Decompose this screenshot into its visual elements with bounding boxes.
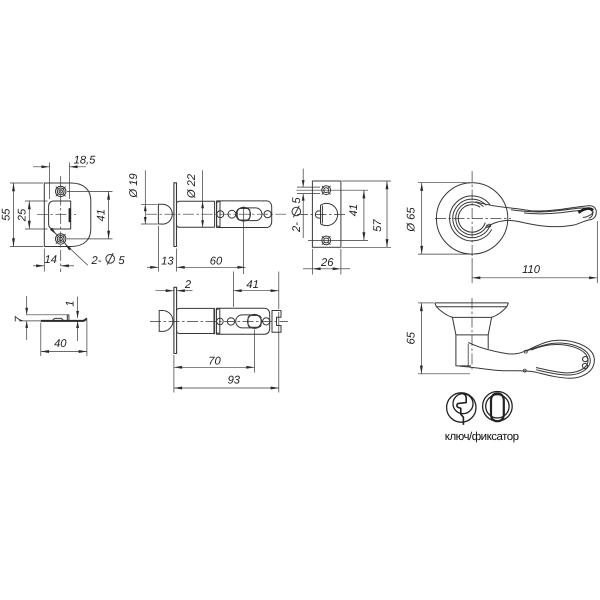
svg-text:2-: 2- — [291, 222, 303, 233]
svg-text:13: 13 — [161, 255, 174, 267]
svg-text:60: 60 — [210, 255, 223, 267]
svg-text:41: 41 — [348, 204, 360, 216]
svg-text:1: 1 — [64, 300, 76, 306]
svg-text:65: 65 — [405, 331, 417, 344]
svg-text:110: 110 — [522, 264, 541, 276]
svg-text:55: 55 — [1, 208, 13, 221]
svg-text:18,5: 18,5 — [74, 155, 97, 167]
svg-text:40: 40 — [54, 338, 67, 350]
svg-text:25: 25 — [16, 208, 28, 222]
svg-text:14: 14 — [44, 254, 56, 266]
svg-text:5: 5 — [118, 255, 125, 267]
svg-text:ключ/фиксатор: ключ/фиксатор — [445, 431, 519, 443]
svg-text:Ø 65: Ø 65 — [406, 207, 418, 233]
svg-text:26: 26 — [320, 257, 334, 269]
svg-text:93: 93 — [228, 375, 241, 387]
svg-text:Ø 22: Ø 22 — [186, 173, 198, 199]
svg-text:41: 41 — [246, 279, 258, 291]
svg-text:7: 7 — [14, 316, 26, 323]
svg-text:5: 5 — [291, 197, 303, 204]
svg-text:70: 70 — [208, 355, 221, 367]
svg-text:Ø 19: Ø 19 — [128, 173, 140, 198]
svg-text:41: 41 — [95, 209, 107, 221]
svg-text:57: 57 — [372, 219, 384, 232]
svg-text:2: 2 — [184, 279, 192, 291]
svg-text:2-: 2- — [91, 255, 102, 267]
